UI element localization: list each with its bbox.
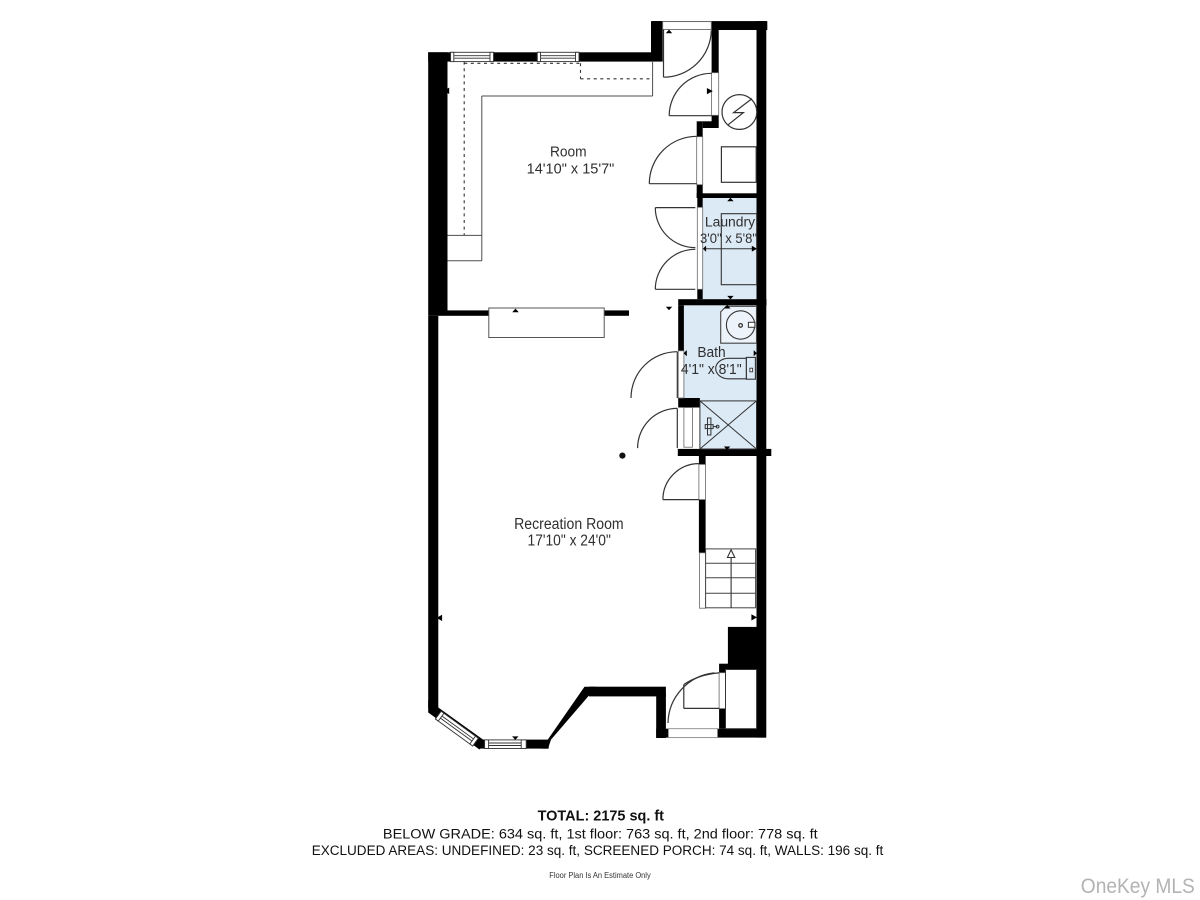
svg-text:14'10" x 15'7": 14'10" x 15'7" <box>527 161 615 178</box>
svg-text:3'0" x 5'8": 3'0" x 5'8" <box>700 231 757 246</box>
svg-text:Room: Room <box>550 144 587 161</box>
svg-text:Floor Plan Is An Estimate Only: Floor Plan Is An Estimate Only <box>549 871 650 880</box>
svg-text:4'1" x 8'1": 4'1" x 8'1" <box>681 361 742 378</box>
svg-text:BELOW GRADE: 634 sq. ft, 1st f: BELOW GRADE: 634 sq. ft, 1st floor: 763 … <box>383 826 818 842</box>
svg-text:Laundry: Laundry <box>705 215 756 230</box>
svg-text:Recreation Room: Recreation Room <box>514 516 624 533</box>
svg-text:EXCLUDED AREAS: UNDEFINED: 23: EXCLUDED AREAS: UNDEFINED: 23 sq. ft, SC… <box>312 843 884 859</box>
svg-text:17'10" x 24'0": 17'10" x 24'0" <box>528 532 611 549</box>
svg-text:Bath: Bath <box>697 344 725 361</box>
svg-text:OneKey MLS: OneKey MLS <box>1081 875 1195 898</box>
svg-text:TOTAL: 2175 sq. ft: TOTAL: 2175 sq. ft <box>538 809 664 825</box>
